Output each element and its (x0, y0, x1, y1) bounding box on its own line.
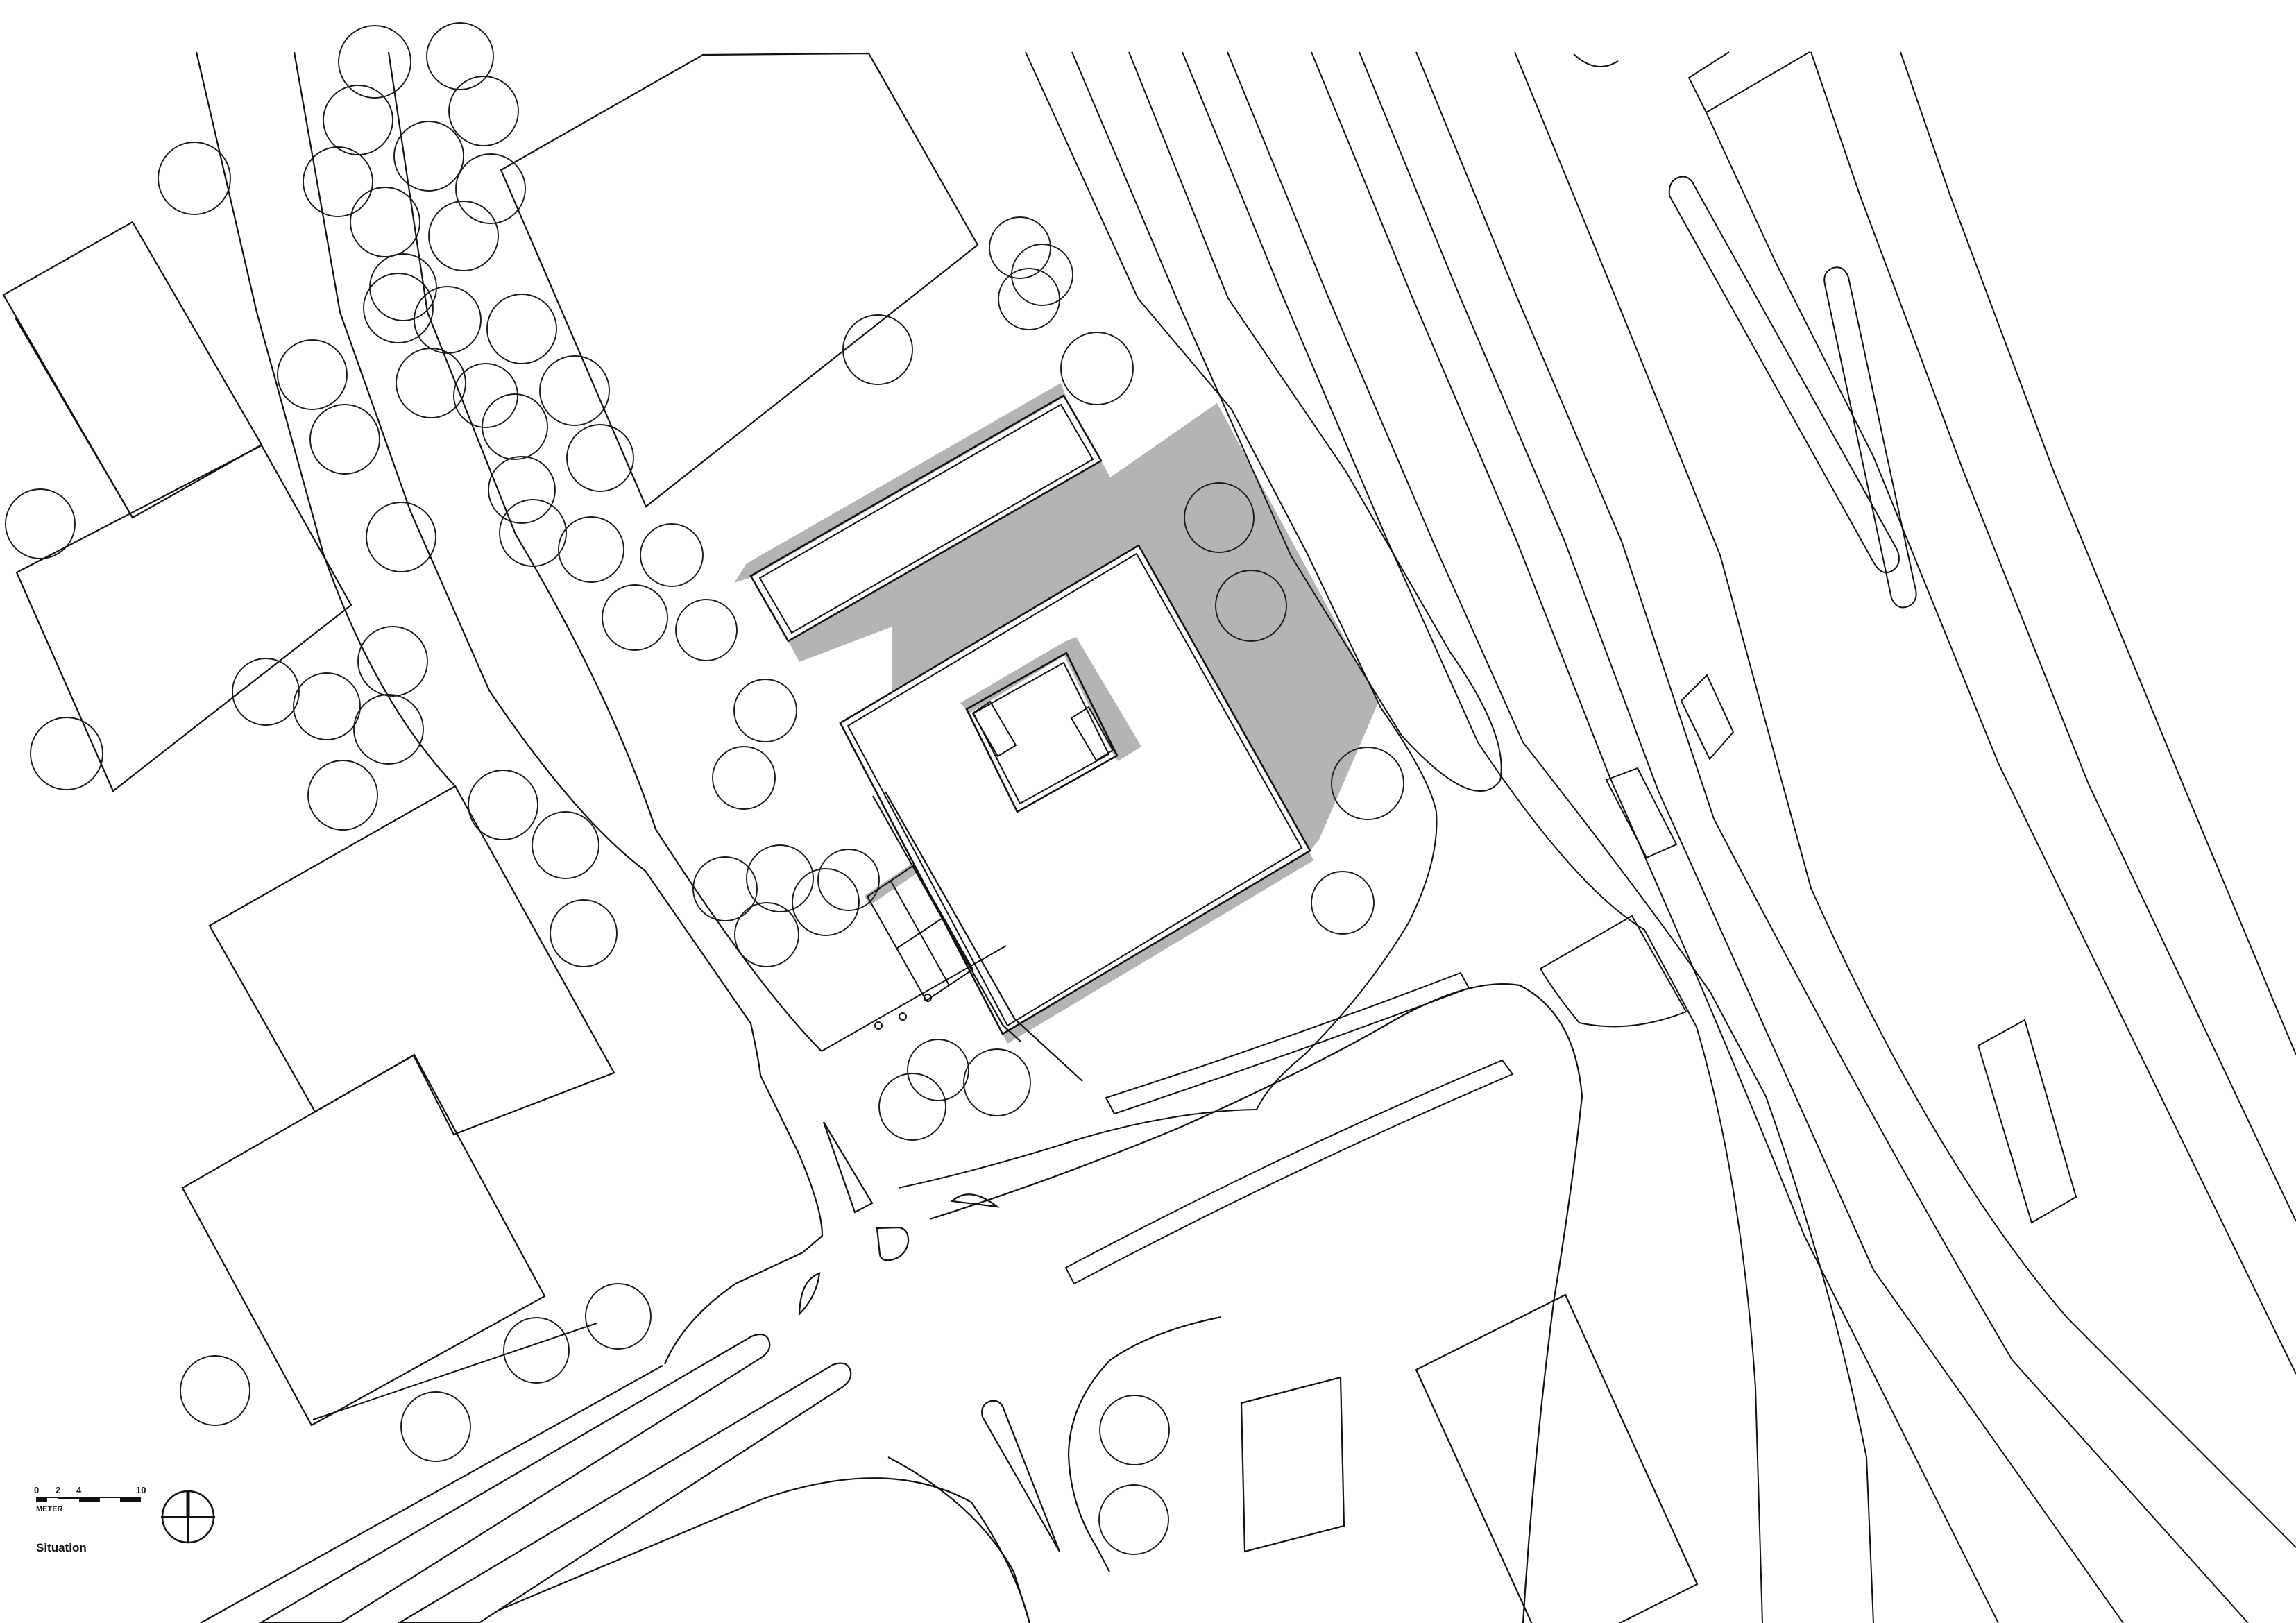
svg-text:10: 10 (136, 1485, 146, 1495)
svg-text:4: 4 (76, 1485, 82, 1495)
svg-text:Situation: Situation (36, 1541, 87, 1554)
svg-text:0: 0 (34, 1485, 39, 1495)
svg-text:2: 2 (56, 1485, 60, 1495)
svg-text:METER: METER (36, 1505, 63, 1513)
